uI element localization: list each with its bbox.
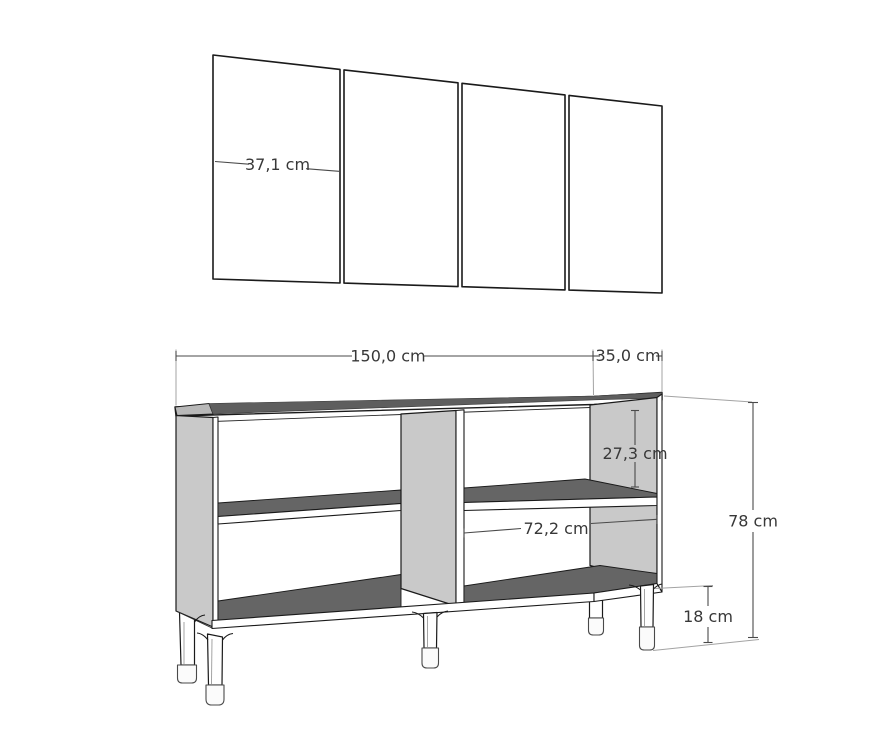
dimension-height: 78 cm (728, 403, 778, 638)
leg-front-middle (424, 613, 438, 649)
leg-front-left (180, 612, 195, 665)
leg-cap-front-left (178, 665, 197, 683)
dim-label-height: 78 cm (728, 512, 778, 531)
dimension-leg-height: 18 cm (683, 587, 733, 643)
door-panel-3 (462, 83, 565, 290)
leg-cap-front-middle (422, 648, 439, 668)
cabinet-top-left-end (175, 404, 213, 416)
furniture-dimension-diagram: 37,1 cm (0, 0, 891, 752)
bracket-back-left-b (223, 634, 234, 641)
door-panel-4 (569, 95, 662, 293)
leg-back-left (208, 634, 223, 685)
leg-front-right (641, 585, 654, 628)
right-panel-front-edge (657, 394, 662, 592)
ext-line-height-top (664, 396, 752, 402)
cabinet-drawing (175, 393, 662, 706)
dim-label-depth: 35,0 cm (595, 346, 660, 365)
center-divider-front-edge (456, 410, 464, 608)
door-panels-group: 37,1 cm (213, 55, 662, 293)
dim-label-width: 150,0 cm (350, 347, 425, 366)
leg-cap-back-left (206, 685, 224, 705)
left-side-panel (176, 416, 213, 628)
center-divider (401, 411, 456, 607)
bracket-back-left-a (197, 633, 208, 640)
leg-back-left-contour (212, 639, 213, 684)
dim-label-door-width: 37,1 cm (245, 155, 310, 174)
ext-line-floor (653, 640, 759, 651)
diagram-svg: 37,1 cm (0, 0, 891, 752)
dim-label-leg-height: 18 cm (683, 607, 733, 626)
left-panel-inner-edge (213, 417, 218, 627)
dimension-depth: 35,0 cm (593, 346, 662, 365)
dim-label-shelf-gap: 27,3 cm (602, 444, 667, 463)
dim-label-compartment-width: 72,2 cm (523, 519, 588, 538)
door-panel-2 (344, 70, 458, 287)
leg-cap-back-right (589, 618, 604, 635)
leg-cap-front-right (640, 627, 655, 650)
dim-line-compartment-a (464, 529, 521, 534)
dimension-width: 150,0 cm (176, 347, 593, 366)
